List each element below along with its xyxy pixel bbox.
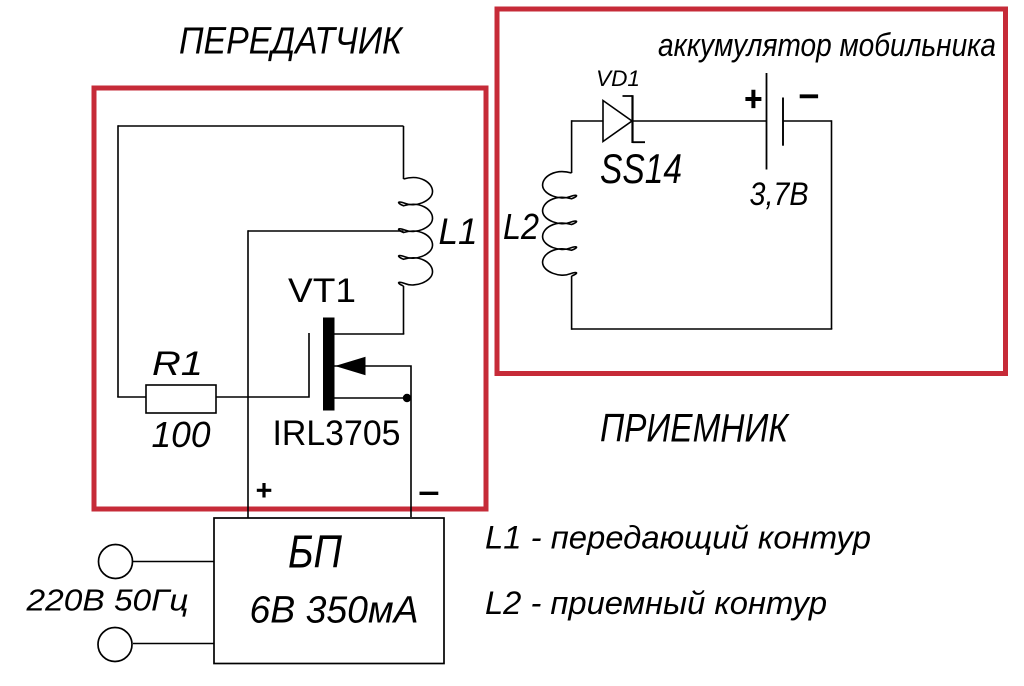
svg-text:SS14: SS14 (600, 145, 682, 192)
svg-text:ПЕРЕДАТЧИК: ПЕРЕДАТЧИК (179, 21, 404, 63)
svg-text:VT1: VT1 (288, 272, 356, 310)
svg-text:ПРИЕМНИК: ПРИЕМНИК (600, 407, 790, 451)
svg-text:L2 - приемный контур: L2 - приемный контур (485, 585, 827, 621)
svg-text:VD1: VD1 (596, 66, 640, 91)
svg-text:L1: L1 (439, 211, 478, 252)
svg-text:аккумулятор мобильника: аккумулятор мобильника (658, 27, 996, 63)
svg-text:IRL3705: IRL3705 (273, 414, 401, 453)
svg-text:220В 50Гц: 220В 50Гц (25, 583, 188, 618)
svg-text:R1: R1 (152, 345, 203, 383)
svg-text:100: 100 (152, 414, 211, 455)
svg-text:L1 - передающий контур: L1 - передающий контур (485, 520, 871, 556)
svg-text:L2: L2 (503, 206, 539, 247)
svg-text:БП: БП (288, 526, 343, 578)
svg-text:6В 350мА: 6В 350мА (250, 590, 419, 632)
svg-text:3,7В: 3,7В (750, 176, 809, 212)
